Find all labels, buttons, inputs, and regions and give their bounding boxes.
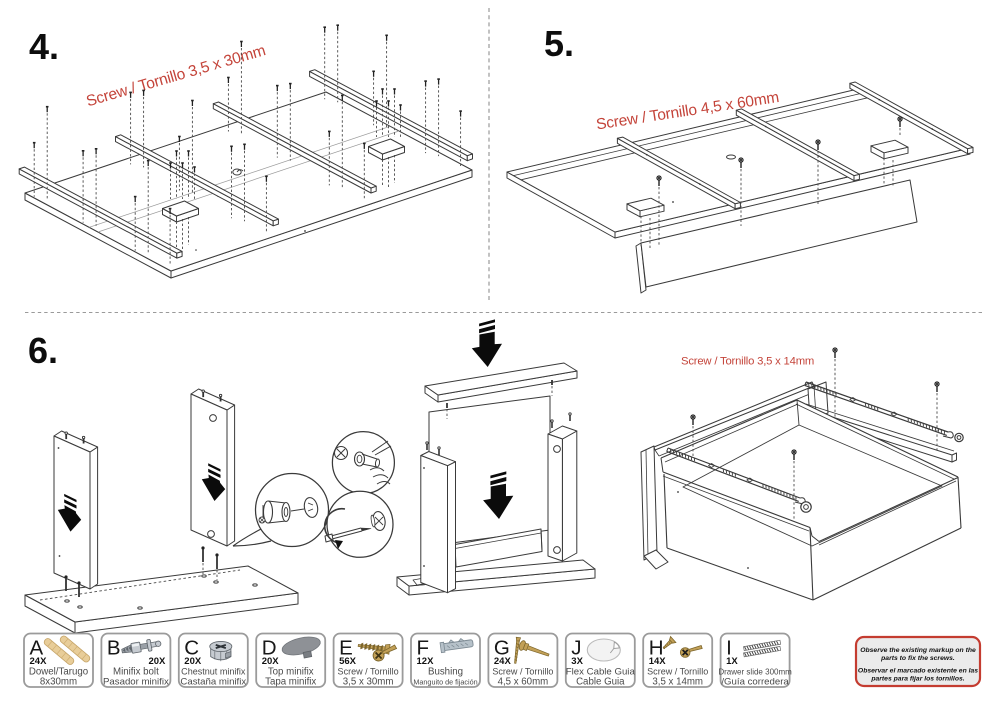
svg-text:6.: 6. [28,330,58,371]
svg-text:Manguito de fijación: Manguito de fijación [413,678,477,687]
svg-text:4.: 4. [29,26,59,67]
svg-text:Screw / Tornillo 3,5 x 14mm: Screw / Tornillo 3,5 x 14mm [681,356,814,368]
svg-text:3,5 x 30mm: 3,5 x 30mm [343,677,394,688]
svg-text:12X: 12X [417,656,435,667]
svg-text:Tapa minifix: Tapa minifix [265,677,316,688]
svg-text:24X: 24X [30,656,48,667]
svg-text:24X: 24X [494,656,512,667]
svg-text:Chestnut minifix: Chestnut minifix [181,667,246,677]
svg-text:parts to fix the screws.: parts to fix the screws. [880,655,955,662]
svg-text:Pasador minifix: Pasador minifix [103,677,169,688]
svg-text:20X: 20X [184,656,202,667]
svg-text:20X: 20X [148,656,166,667]
svg-text:Screw / Tornillo: Screw / Tornillo [647,667,708,677]
svg-text:5.: 5. [544,23,574,64]
svg-text:14X: 14X [649,656,667,667]
svg-text:Bushing: Bushing [428,667,463,678]
svg-text:Screw / Tornillo: Screw / Tornillo [338,667,399,677]
svg-text:56X: 56X [339,656,357,667]
svg-text:4,5 x 60mm: 4,5 x 60mm [498,677,549,688]
svg-text:partes para fijar los tornillo: partes para fijar los tornillos. [870,676,964,683]
svg-text:Cable Guia: Cable Guia [576,677,625,688]
svg-text:/Guía corredera: /Guía corredera [721,677,789,688]
svg-text:3,5 x 14mm: 3,5 x 14mm [652,677,703,688]
svg-text:Observar el marcado existente: Observar el marcado existente en las [858,668,978,675]
svg-text:Observe the existing markup on: Observe the existing markup on the [860,647,976,654]
svg-text:8x30mm: 8x30mm [40,677,77,688]
svg-text:Drawer slide 300mm: Drawer slide 300mm [718,668,792,677]
svg-text:20X: 20X [262,656,280,667]
svg-text:1X: 1X [726,656,738,667]
svg-text:3X: 3X [571,656,583,667]
svg-text:Castaña minifix: Castaña minifix [180,677,246,688]
svg-text:Screw / Tornillo: Screw / Tornillo [492,667,553,677]
svg-text:B: B [107,637,121,660]
